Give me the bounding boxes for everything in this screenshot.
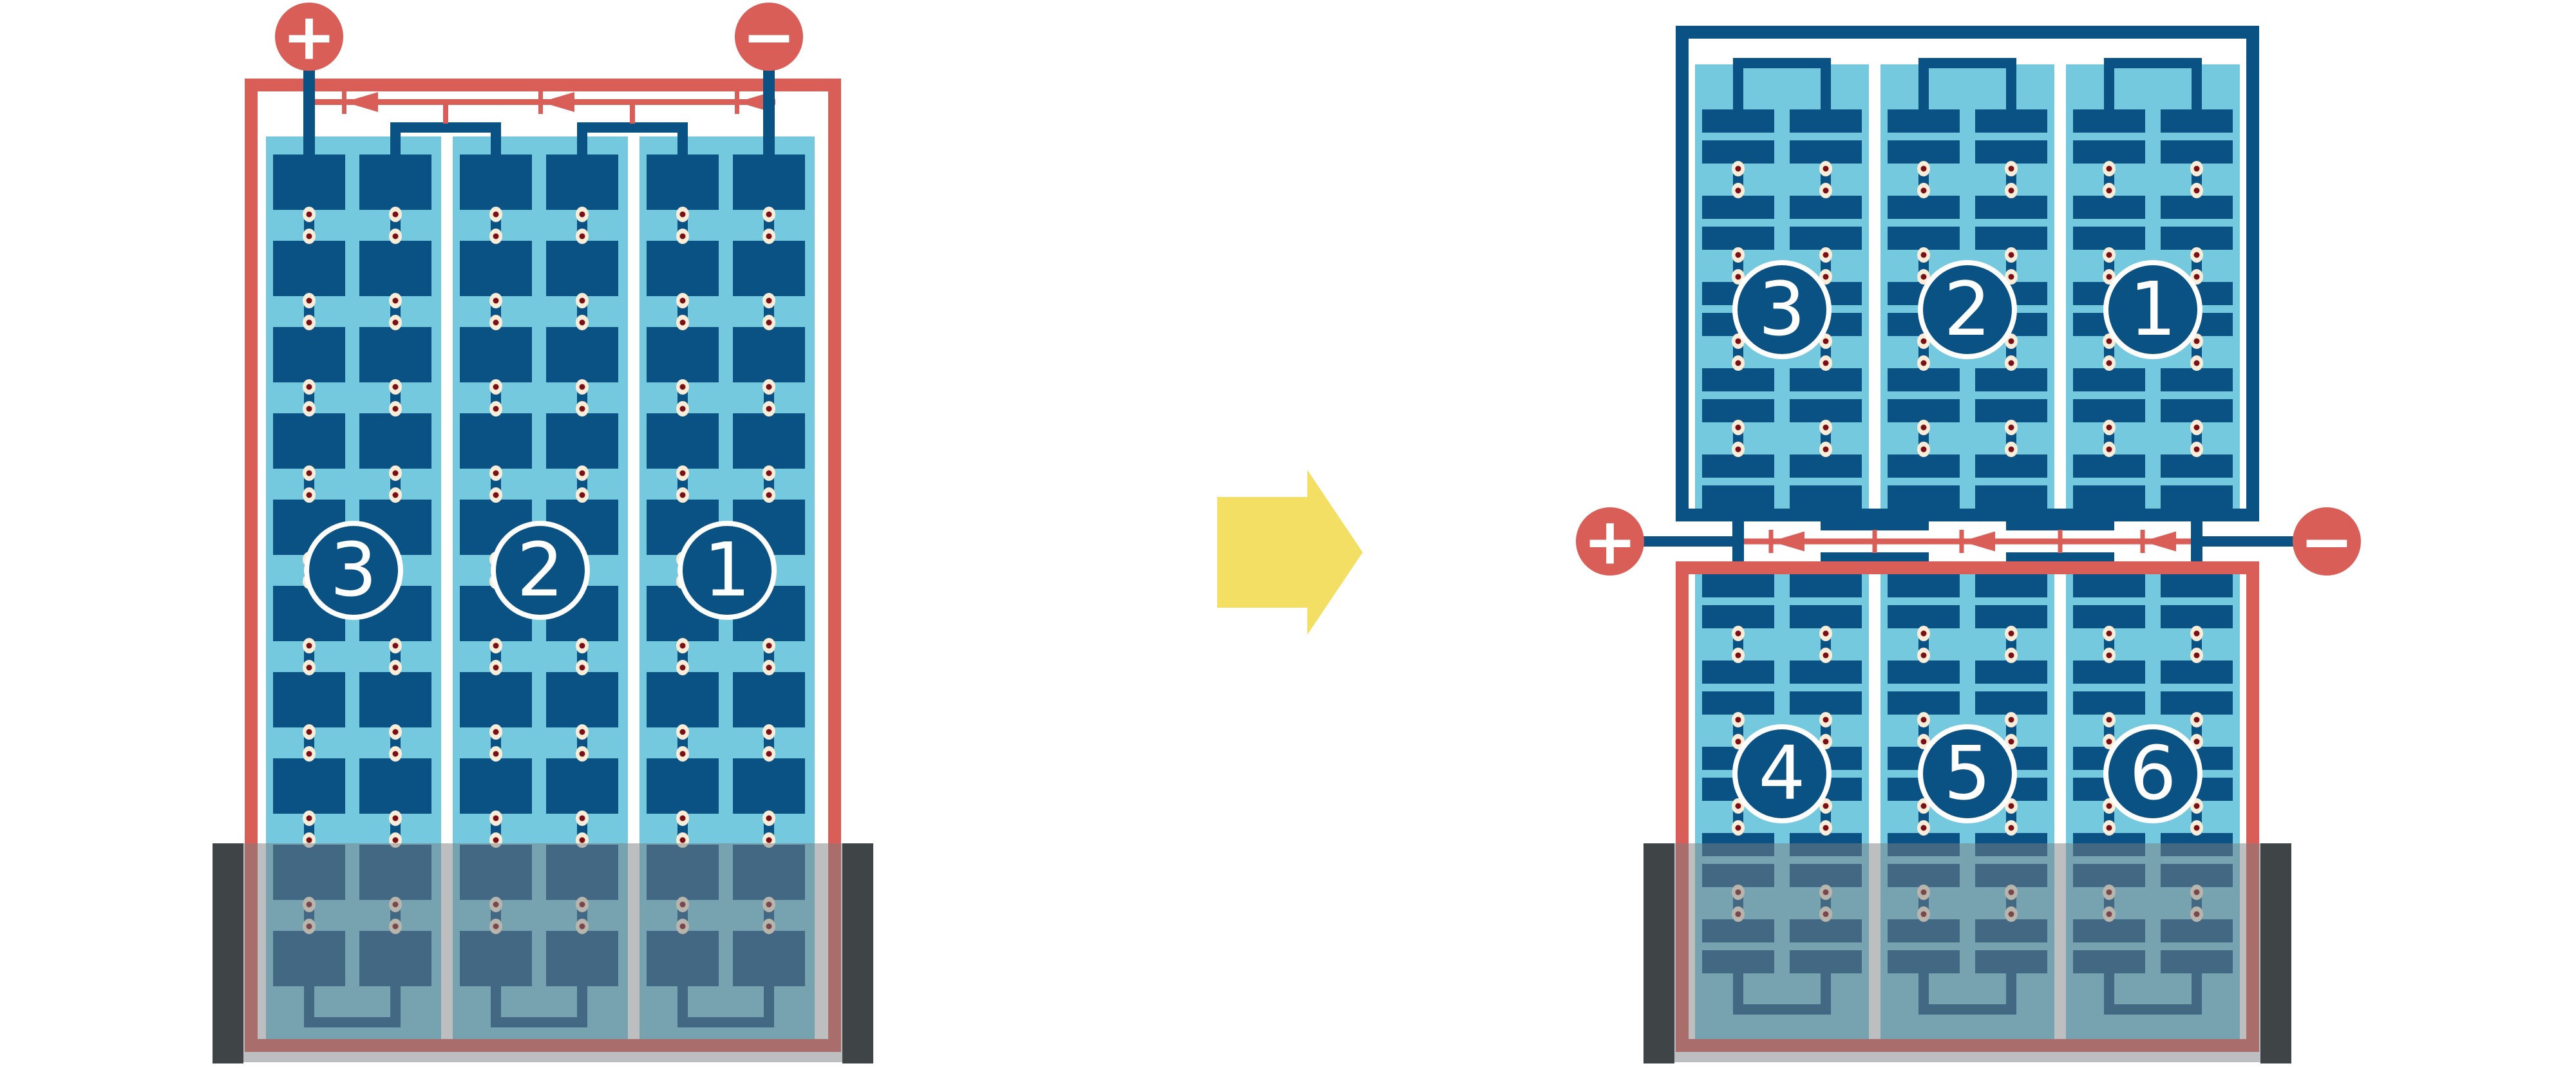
arrow-right-icon	[1217, 470, 1363, 635]
holder-bar	[1643, 843, 1674, 1063]
plus-icon: +	[282, 0, 336, 75]
cell-number: 2	[1944, 267, 1991, 353]
series-tab	[2006, 521, 2114, 530]
right-battery: 3 2 1	[1576, 32, 2361, 1063]
minus-icon: −	[742, 0, 796, 75]
left-positive-terminal: +	[275, 0, 343, 75]
current-stub	[630, 102, 635, 124]
holder-veil	[213, 843, 873, 1062]
cell-number: 1	[703, 527, 750, 614]
current-tick	[1873, 530, 1877, 553]
current-direction-arrow-icon	[1962, 532, 1995, 552]
cell-number: 3	[330, 527, 377, 614]
top-row-cell-numbers: 3 2 1	[1735, 263, 2200, 357]
current-direction-arrow-icon	[1771, 532, 1804, 552]
negative-terminal-bar	[2202, 536, 2294, 547]
current-tick	[2058, 530, 2063, 553]
positive-terminal-post	[303, 64, 315, 162]
series-tab	[2006, 552, 2114, 561]
cell-number: 3	[1758, 267, 1805, 353]
cell-number: 2	[516, 527, 563, 614]
right-battery-top-row: 3 2 1	[1682, 32, 2253, 515]
right-negative-terminal: −	[2293, 504, 2361, 579]
right-battery-bottom-row: 4 5 6	[1643, 568, 2291, 1063]
holder-bar	[213, 843, 243, 1063]
cell-number: 1	[2129, 267, 2176, 353]
minus-icon: −	[2300, 504, 2354, 579]
cell-number: 6	[2129, 731, 2176, 817]
middle-current-path	[1744, 530, 2191, 553]
positive-terminal-bar	[1643, 536, 1732, 547]
plus-icon: +	[1583, 504, 1637, 579]
positive-terminal-post	[1732, 521, 1744, 561]
negative-terminal-post	[2191, 521, 2202, 561]
right-positive-terminal: +	[1576, 504, 1644, 579]
diagram-canvas: + − 3 2 1	[0, 0, 2576, 1068]
current-stub	[443, 102, 448, 124]
left-negative-terminal: −	[735, 0, 803, 75]
cell-number: 5	[1944, 731, 1991, 817]
battery-series-diagram: + − 3 2 1	[0, 0, 2576, 1068]
series-tab	[1821, 552, 1929, 561]
bottom-row-cell-numbers: 4 5 6	[1735, 727, 2200, 821]
holder-veil	[1643, 843, 2291, 1062]
negative-terminal-post	[763, 64, 775, 162]
left-cell-numbers: 3 2 1	[307, 523, 774, 617]
left-battery: + − 3 2 1	[213, 0, 873, 1063]
current-direction-arrow-icon	[2143, 532, 2176, 552]
series-tab	[1821, 521, 1929, 530]
cell-number: 4	[1758, 731, 1805, 817]
holder-bar	[2260, 843, 2291, 1063]
holder-bar	[842, 843, 873, 1063]
